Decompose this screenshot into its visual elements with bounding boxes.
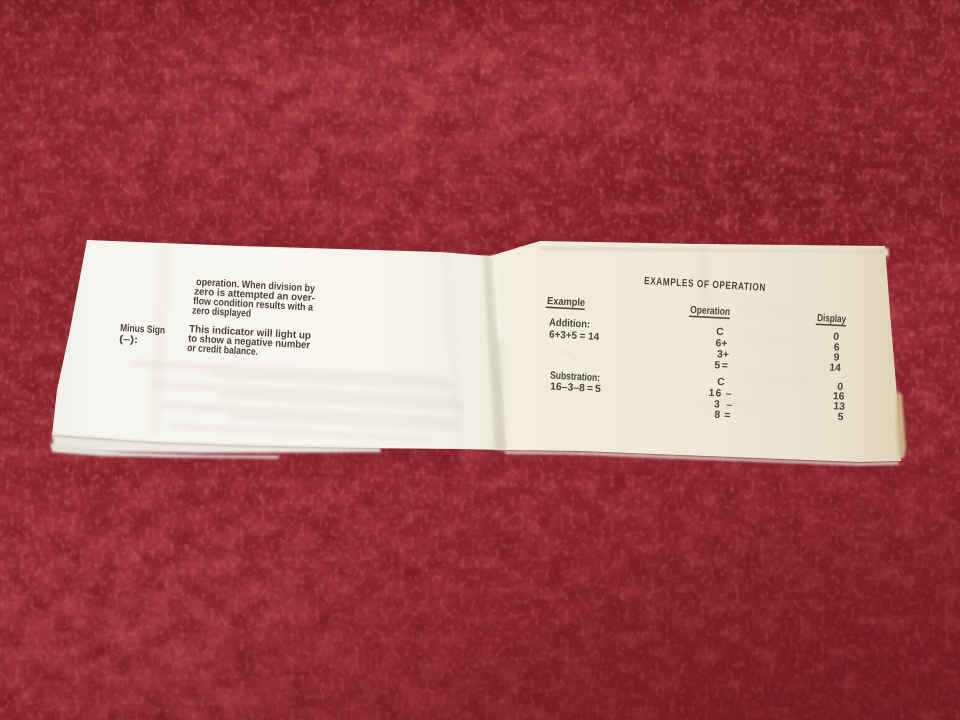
svg-text:(–):: (–): <box>119 334 139 346</box>
svg-text:5 =: 5 = <box>714 360 728 372</box>
svg-text:C: C <box>716 327 725 338</box>
svg-text:C: C <box>717 377 726 388</box>
svg-text:8 =: 8 = <box>714 410 731 422</box>
svg-text:6+: 6+ <box>715 338 727 350</box>
svg-text:16 –: 16 – <box>708 388 732 400</box>
svg-text:3+: 3+ <box>717 349 729 361</box>
svg-text:Addition:: Addition: <box>549 318 591 331</box>
svg-text:14: 14 <box>829 363 841 375</box>
svg-text:5: 5 <box>837 412 844 423</box>
svg-text:Display: Display <box>817 313 847 326</box>
